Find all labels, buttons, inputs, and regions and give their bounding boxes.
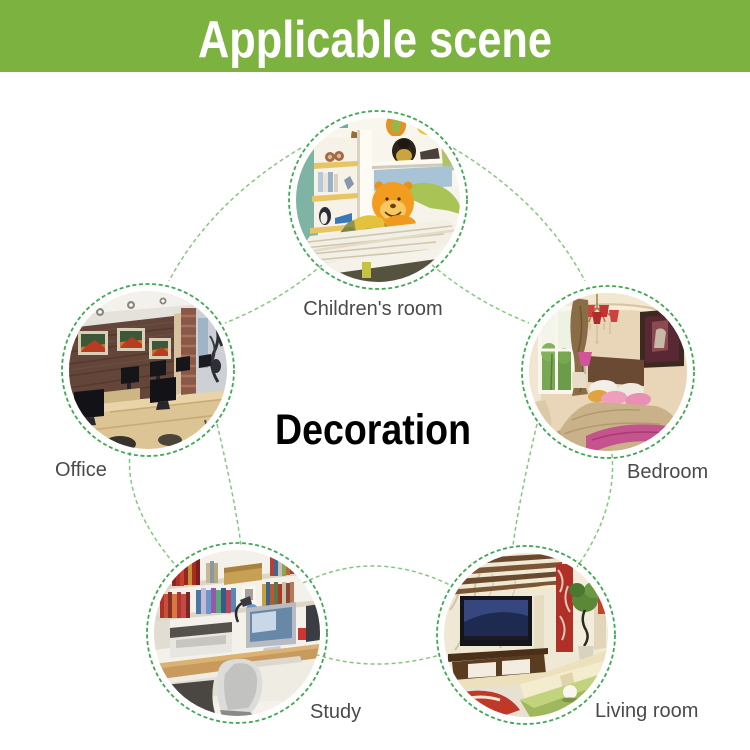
svg-text:Office: Office bbox=[55, 459, 107, 481]
svg-text:Bedroom: Bedroom bbox=[627, 461, 708, 483]
svg-text:Living room: Living room bbox=[595, 700, 698, 722]
svg-text:Applicable scene: Applicable scene bbox=[198, 11, 552, 69]
svg-text:Study: Study bbox=[310, 701, 361, 723]
svg-text:Children's room: Children's room bbox=[303, 298, 442, 320]
svg-text:Decoration: Decoration bbox=[275, 406, 471, 454]
